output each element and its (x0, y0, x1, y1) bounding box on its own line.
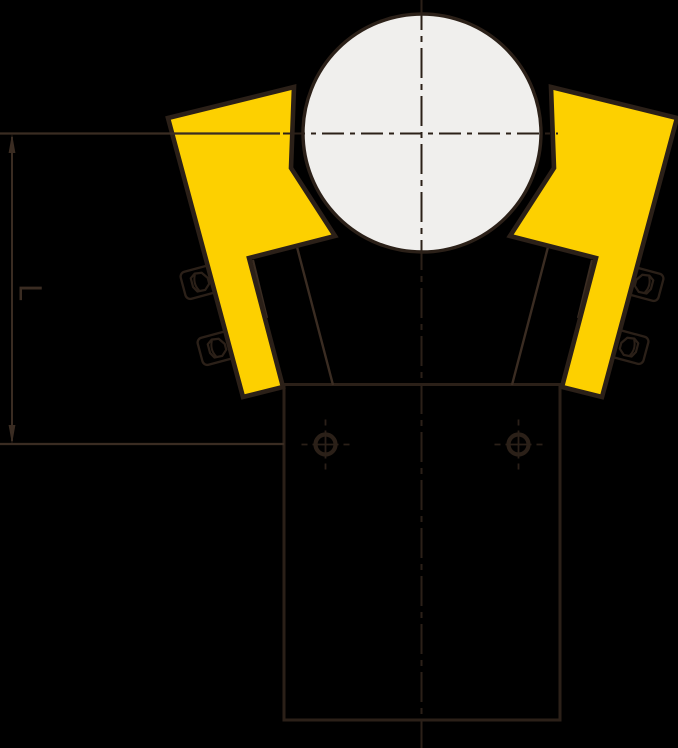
bolt-head-icon (190, 271, 211, 293)
dimension-arrow-down (9, 425, 16, 444)
dimension-arrow-up (9, 134, 16, 153)
bolt-head-icon (207, 337, 228, 359)
mounting-hole-left (302, 420, 350, 470)
mounting-hole-right (495, 420, 543, 470)
clamp-technical-diagram: L (0, 0, 678, 748)
diagram-canvas (0, 0, 678, 748)
body-neck-edge-right (512, 247, 548, 385)
body-neck-edge-left (297, 247, 333, 385)
bolt-head-icon (618, 336, 639, 358)
dimension-label: L (13, 284, 43, 301)
